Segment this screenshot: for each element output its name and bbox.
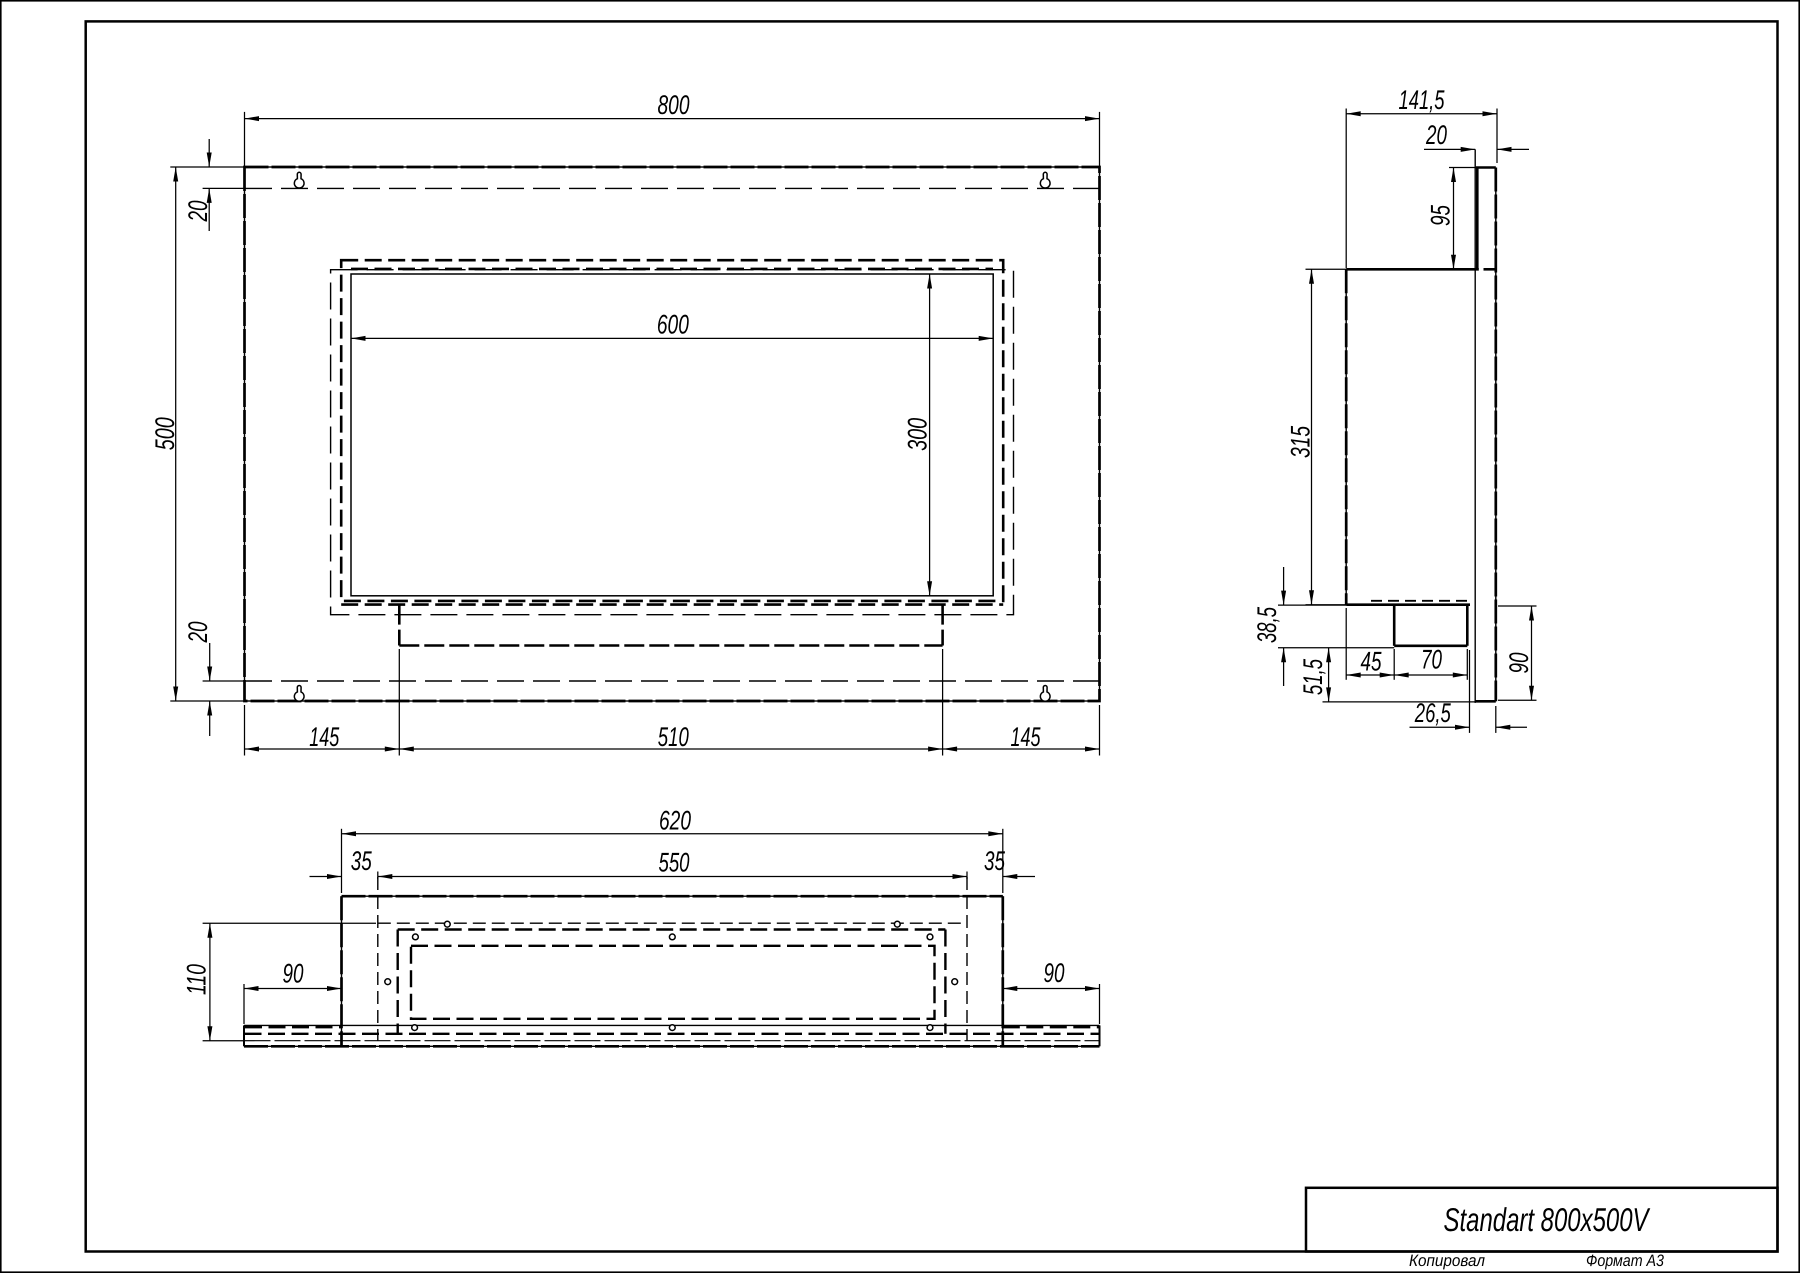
svg-text:620: 620 xyxy=(659,806,691,836)
svg-text:20: 20 xyxy=(183,622,213,644)
svg-text:38,5: 38,5 xyxy=(1252,606,1282,643)
svg-text:95: 95 xyxy=(1426,204,1456,226)
svg-text:300: 300 xyxy=(903,418,933,451)
svg-text:Копировал: Копировал xyxy=(1409,1252,1485,1270)
svg-text:90: 90 xyxy=(1044,958,1065,988)
svg-text:145: 145 xyxy=(1011,722,1042,752)
svg-text:145: 145 xyxy=(309,722,340,752)
svg-text:20: 20 xyxy=(183,201,213,223)
svg-text:Standart 800x500V: Standart 800x500V xyxy=(1444,1201,1651,1238)
svg-text:70: 70 xyxy=(1421,645,1442,675)
svg-text:510: 510 xyxy=(658,722,689,752)
svg-text:315: 315 xyxy=(1286,425,1316,458)
svg-text:800: 800 xyxy=(658,90,690,120)
svg-text:Формат А3: Формат А3 xyxy=(1586,1252,1665,1270)
svg-text:35: 35 xyxy=(351,846,373,876)
svg-text:550: 550 xyxy=(659,848,690,878)
svg-text:90: 90 xyxy=(1504,653,1534,674)
svg-text:51,5: 51,5 xyxy=(1298,658,1328,695)
svg-text:110: 110 xyxy=(182,964,212,995)
svg-text:500: 500 xyxy=(150,417,180,450)
svg-text:90: 90 xyxy=(283,959,304,989)
svg-text:45: 45 xyxy=(1361,647,1383,677)
svg-text:20: 20 xyxy=(1425,120,1447,150)
svg-text:26,5: 26,5 xyxy=(1414,698,1451,728)
svg-text:141,5: 141,5 xyxy=(1399,85,1446,115)
svg-text:600: 600 xyxy=(657,310,689,340)
svg-text:35: 35 xyxy=(984,846,1006,876)
